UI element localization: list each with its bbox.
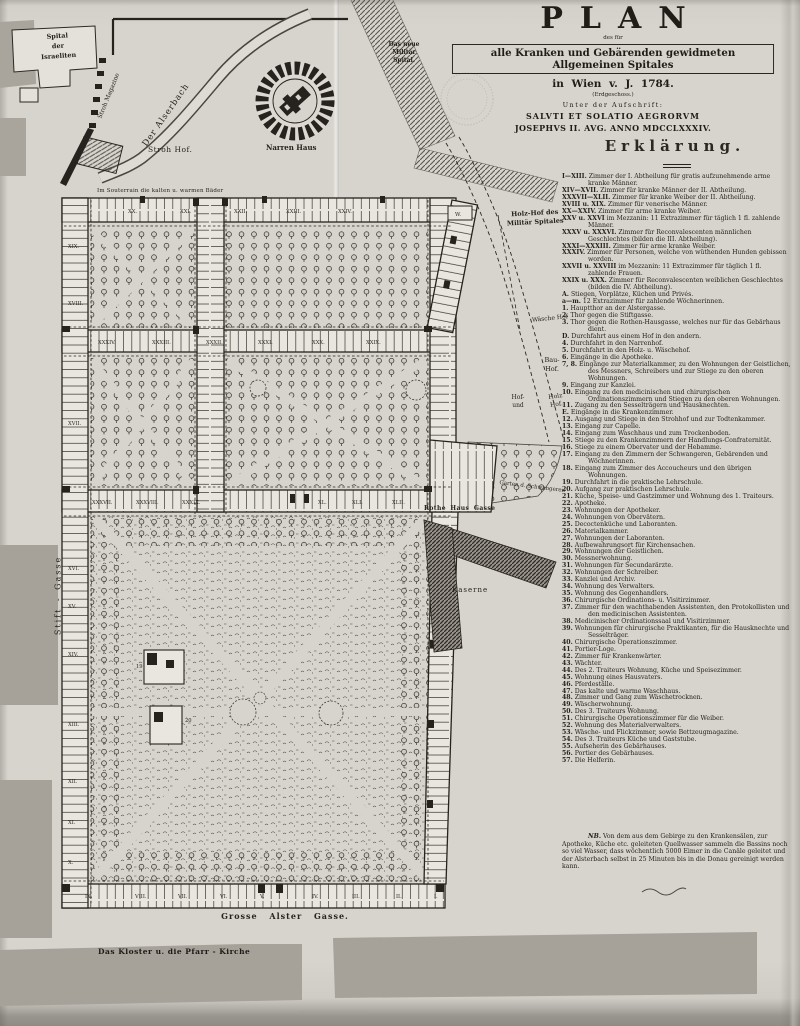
room-label: XXIX. [366, 340, 381, 346]
legend-entry-text: Zimmer der I. Abtheilung für gratis aufz… [588, 173, 770, 187]
legend-entry-key: 30. [562, 555, 573, 562]
inscription-line2: JOSEPHVS II. AVG. ANNO MDCCLXXXIV. [447, 123, 779, 133]
label-souterrain-note: Im Souterrain die kalten u. warmen Bäder [97, 188, 223, 195]
legend-entry-key: 57. [562, 757, 573, 764]
legend-entry-text: Stiege zu den Krankenzimmern der Handlun… [575, 437, 772, 444]
legend-entry-text: Des 2. Traiteurs Wohnung, Küche und Spei… [575, 667, 742, 674]
legend-entry-key: XVIII u. XIX. [562, 201, 606, 208]
title-floor-note: (Erdgeschoss.) [447, 92, 779, 98]
legend-entry-key: 45. [562, 674, 573, 681]
legend-entry-key: 42. [562, 653, 573, 660]
legend-entry-text: Wohnungen der Apotheker. [575, 507, 661, 514]
room-label: VII. [177, 894, 188, 900]
legend-entry-text: Ausgang und Stiege in den Strohhof und z… [575, 416, 766, 423]
legend-entry-text: Durchfahrt in den Narrenhof. [570, 340, 663, 347]
legend-entry: XXIX u. XXX. Zimmer für Reconvalescenten… [562, 278, 791, 292]
legend-entry-key: XXXV u. XXXVI. [562, 229, 616, 236]
room-label: XXII. [234, 209, 247, 215]
legend-entry-text: Portier des Gebärhauses. [575, 750, 654, 757]
narrenturm [255, 61, 335, 141]
outbuilding [20, 88, 38, 102]
label-kloster: Das Kloster u. die Pfarr - Kirche [98, 947, 250, 957]
legend-entry-key: 31. [562, 562, 573, 569]
legend-entry-text: Decoctenküche und Laboranten. [575, 521, 677, 528]
room-label: V. [259, 894, 265, 900]
legend-entry-key: 47. [562, 688, 573, 695]
legend-entry-text: Wohnungen der Schreiber. [575, 569, 659, 576]
room-label: XVI. [68, 566, 79, 572]
legend-entry-text: Zimmer für arme kranke Weiber. [598, 208, 701, 215]
nb-label: NB. [588, 833, 601, 840]
inscription-intro: Unter der Aufschrift: [447, 101, 779, 109]
legend-entry-key: 23. [562, 507, 573, 514]
legend-entry-key: 39. [562, 625, 573, 632]
label-militaer-spital: Das neue Militär Spital. [383, 41, 425, 65]
legend-entry-key: D. [562, 333, 569, 340]
label-rothe-haus-gasse: Rothe Haus Gasse [424, 505, 495, 513]
legend-entry-key: 36. [562, 597, 573, 604]
legend-entry: 37. Zimmer für den wachthabenden Assiste… [562, 605, 791, 619]
printer-imprint: ···· · ·· ····· ····· ··········· ···· ·… [300, 1010, 366, 1014]
legend-entry-text: Chirurgische Operationszimmer für die We… [575, 715, 724, 722]
legend-entry: 39. Wohnungen für chirurgische Praktikan… [562, 626, 791, 640]
legend-entry-text: Wohnung eines Hausvaters. [575, 674, 663, 681]
legend-entry-text: Eingang zum Waschhaus und zum Trockenbod… [575, 430, 731, 437]
legend-entry-text: Eingänge in die Apotheke. [570, 354, 653, 361]
legend-entry: 18. Eingang zum Zimmer des Accoucheurs u… [562, 466, 791, 480]
legend-entry-text: Medicinischer Ordinationssaal und Visiti… [575, 618, 731, 625]
legend-entry-key: 2. [562, 312, 568, 319]
legend-entry-text: Wächter. [575, 660, 602, 667]
room-label: IV. [312, 894, 319, 900]
legend-entry-text: Wäscherwohnung. [575, 701, 633, 708]
legend-entry-key: 37. [562, 604, 573, 611]
legend-entry-key: 10. [562, 389, 573, 396]
legend-entry-text: Aufseherin des Gebärhauses. [575, 743, 667, 750]
legend-entry: XXXV u. XXXVI. Zimmer für Reconvalescent… [562, 230, 791, 244]
legend-entry: XXVII u. XXVIII im Mezzanin: 11 Extrazim… [562, 264, 791, 278]
legend-entry: 10. Eingang zu den medicinischen und chi… [562, 390, 791, 404]
label-kaserne: Kaserne [452, 586, 488, 595]
legend-entry-key: XXXIV. [562, 249, 585, 256]
legend-entry-key: 22. [562, 500, 573, 507]
legend-entry-key: a—m. [562, 298, 581, 305]
legend-entry-text: Wohnungen für chirurgische Praktikanten,… [575, 625, 789, 639]
legend-entry-text: Eingang zur Capelle. [575, 423, 641, 430]
great-garden [91, 516, 428, 882]
legend-entry-text: Eingänge in die Krankenzimmer. [571, 409, 674, 416]
legend-entry-key: 6. [562, 354, 568, 361]
title-boxed-subtitle: alle Kranken und Gebärenden gewidmeten A… [452, 44, 774, 74]
legend-entry-key: 21. [562, 493, 573, 500]
legend-entry-key: 48. [562, 694, 573, 701]
legend-entry-key: XXXVII—XLII. [562, 194, 610, 201]
legend-entry-text: Zimmer für venerische Männer. [608, 201, 708, 208]
room-label: XXXI. [258, 340, 273, 346]
legend-entry-key: 27. [562, 535, 573, 542]
legend-entry-text: Durchfahrt in den Holz- u. Wäschehof. [570, 347, 690, 354]
legend-entry-key: 3. [562, 319, 568, 326]
legend-entry-key: 11. [562, 402, 573, 409]
legend-entry-text: Wohnung des Materialverwalters. [575, 722, 681, 729]
legend-entry-text: Zimmer und Gang zum Wäschetrocknen. [575, 694, 703, 701]
legend-entry-key: XIV—XVII. [562, 187, 598, 194]
label-stroh-hof: Stroh Hof. [148, 145, 192, 155]
road-band-north [350, 0, 455, 150]
legend-entry-key: 49. [562, 701, 573, 708]
label-spital-israeliten: Spital der Israeliten [27, 30, 89, 63]
legend-entry-key: A. [562, 291, 569, 298]
legend-entry-text: Eingang zu den Zimmern der Schwangeren, … [575, 451, 768, 465]
legend-entry-key: 51. [562, 715, 573, 722]
room-label: XXXIII. [152, 340, 171, 346]
room-label: XVIII. [68, 301, 84, 307]
room-label: II. [396, 894, 402, 900]
legend-entry-key: XX—XXIV. [562, 208, 596, 215]
room-label: XXXIV. [98, 340, 116, 346]
squiggle-divider [642, 888, 686, 895]
legend-entry-key: XXIX u. XXX. [562, 277, 607, 284]
room-label: XV. [68, 604, 77, 610]
room-label: XXX. [312, 340, 325, 346]
legend-entry-text: Aufgang zur praktischen Lehrschule. [575, 486, 691, 493]
inscription-line1: SALVTI ET SOLATIO AEGRORVM [447, 111, 779, 121]
room-label: XXIV. [338, 209, 352, 215]
legend-entry-key: 55. [562, 743, 573, 750]
legend-entry-key: 12. [562, 416, 573, 423]
legend-entry: XXXIV. Zimmer für Personen, welche von w… [562, 250, 791, 264]
legend-entry: XXV u. XXVI im Mezzanin: 11 Extrazimmer … [562, 216, 791, 230]
legend-entry: 17. Eingang zu den Zimmern der Schwanger… [562, 452, 791, 466]
legend-entry-key: 46. [562, 681, 573, 688]
legend-entry-key: 7, 8. [562, 361, 577, 368]
legend-entry-key: 25. [562, 521, 573, 528]
legend-entry-text: Aufbewahrungsort für Kirchensachen. [575, 542, 695, 549]
legend-entry-key: E. [562, 409, 569, 416]
legend-entry-key: 43. [562, 660, 573, 667]
legend-entry-text: Eingang zum Zimmer des Accoucheurs und d… [575, 465, 752, 479]
room-label: XLII. [392, 500, 405, 506]
room-label: XXXII. [206, 340, 223, 346]
legend-entry-text: Zugang zu den Sesselträgern und Hausknec… [575, 402, 730, 409]
legend-entry-text: im Mezzanin: 11 Extrazimmer für täglich … [588, 215, 780, 229]
legend-entry-text: Zimmer für den wachthabenden Assistenten… [575, 604, 790, 618]
room-label: XX. [128, 209, 137, 215]
room-label: III. [352, 894, 360, 900]
legend-entry-text: Materialkammer. [575, 528, 629, 535]
w-building-label: W. [455, 212, 461, 218]
legend-entry-key: XXVII u. XXVIII [562, 263, 616, 270]
legend-entry-text: Wohnungen von Obervätern. [575, 514, 665, 521]
legend-entry-key: 32. [562, 569, 573, 576]
room-label: XXXIX. [182, 500, 201, 506]
garden-building-label: 19 [136, 664, 143, 670]
title-des-fur: des für [447, 35, 779, 41]
legend-entry-text: Thor gegen die Rothen-Hausgasse, welches… [570, 319, 780, 333]
legend-entry-text: Wohnung des Verwalters. [575, 583, 655, 590]
legend-entry-text: Die Helferin. [575, 757, 615, 764]
legend-entry-key: 28. [562, 542, 573, 549]
legend-entry-key: I—XIII. [562, 173, 587, 180]
legend-entry-text: Wohnungen der Laboranten. [575, 535, 665, 542]
legend-entry-key: 13. [562, 423, 573, 430]
legend-entry-key: 29. [562, 548, 573, 555]
legend-entry-key: 1. [562, 305, 568, 312]
room-label: XI. [68, 820, 76, 826]
legend-entry-key: 50. [562, 708, 573, 715]
room-label: XXI. [180, 209, 191, 215]
room-label: XIII. [68, 722, 80, 728]
room-label: XIX. [68, 244, 79, 250]
legend-entry-text: Chirurgische Operationszimmer. [575, 639, 677, 646]
legend-entry-text: Zimmer für kranke Weiber der II. Abtheil… [612, 194, 755, 201]
legend-entry-key: XXXI—XXXIII. [562, 243, 611, 250]
legend-entry-text: 12 Extrazimmer für zahlende Wöchnerinnen… [583, 298, 724, 305]
room-label: XXXVIII. [136, 500, 159, 506]
legend-entry-key: 15. [562, 437, 573, 444]
legend-entry-text: Stiege zu einem Obervater und der Hebamm… [575, 444, 722, 451]
room-label: XLI. [352, 500, 363, 506]
legend-entry: 3. Thor gegen die Rothen-Hausgasse, welc… [562, 320, 791, 334]
room-label: I. [434, 894, 438, 900]
legend-entry-key: 33. [562, 576, 573, 583]
legend-entry-text: Hauptthor an der Alstergasse. [570, 305, 665, 312]
legend-entry-key: 19. [562, 479, 573, 486]
legend-entry-text: Zimmer für arme kranke Weiber. [613, 243, 716, 250]
legend-entry-text: Des 3. Traiteurs Küche und Gaststube. [575, 736, 697, 743]
legend-entry-key: 20. [562, 486, 573, 493]
scanned-plan-page: XX. XXI. XXII. XXIII. XXIV. XXXIV. XXXII… [0, 0, 800, 1026]
legend-entry-text: Durchfahrt in die praktische Lehrschule. [575, 479, 703, 486]
legend-entry-key: 54. [562, 736, 573, 743]
room-label: XIV. [68, 652, 79, 658]
legend-entry: I—XIII. Zimmer der I. Abtheilung für gra… [562, 174, 791, 188]
legend-entry-text: Kanzlei und Archiv. [575, 576, 636, 583]
legend-nb-note: NB. Von dem aus dem Gebirge zu den Krank… [562, 833, 791, 871]
legend-entry-key: 18. [562, 465, 573, 472]
legend-entry-key: 41. [562, 646, 573, 653]
legend-entry-key: 17. [562, 451, 573, 458]
legend-heading: Erklärung. [560, 137, 790, 155]
label-narren-haus: Narren Haus [266, 143, 316, 152]
legend-entry-key: 14. [562, 430, 573, 437]
legend-entry-key: XXV u. XXVI [562, 215, 605, 222]
legend-entry-key: 16. [562, 444, 573, 451]
legend-entry-key: 40. [562, 639, 573, 646]
room-label: XXXVII. [92, 500, 113, 506]
label-holz-hof-militaer: Holz-Hof des Militär Spitales [503, 207, 568, 228]
legend-entry-text: Messnerwohnung. [575, 555, 633, 562]
legend-entry-text: Des 3. Traiteurs Wohnung. [575, 708, 659, 715]
legend-entry-text: Eingang zu den medicinischen und chirurg… [575, 389, 781, 403]
legend-entry-key: 24. [562, 514, 573, 521]
legend-entry-key: 26. [562, 528, 573, 535]
legend-entry-text: Stiegen, Vorplätze, Küchen und Privés. [571, 291, 693, 298]
room-label: VI. [219, 894, 228, 900]
legend-entry-text: Eingang zur Kanzlei. [570, 382, 635, 389]
legend-entry-text: Pferdeställe. [575, 681, 615, 688]
legend-entry-text: Wohnung des Gegenhandlers. [575, 590, 669, 597]
title-wien-line: in Wien v. J. 1784. [447, 78, 779, 90]
legend-entries: I—XIII. Zimmer der I. Abtheilung für gra… [562, 174, 791, 765]
legend-entry-text: Wohnungen der Geistlichen. [575, 548, 664, 555]
title-block: PLAN des für alle Kranken und Gebärenden… [447, 4, 779, 133]
room-label: XXIII. [286, 209, 302, 215]
legend-entry-key: 53. [562, 729, 573, 736]
legend-entry: 7, 8. Eingänge zur Materialkammer, zu de… [562, 362, 791, 383]
legend-entry-text: Zimmer für Reconvalescenten weiblichen G… [588, 277, 783, 291]
legend-entry-key: 56. [562, 750, 573, 757]
room-label: XII. [68, 779, 78, 785]
road-band-east [414, 148, 558, 202]
street-border-line [113, 19, 348, 55]
legend-entry-key: 44. [562, 667, 573, 674]
legend-entry-key: 38. [562, 618, 573, 625]
legend-entry-text: Portier-Loge. [575, 646, 616, 653]
garden-building-label: 20 [185, 718, 192, 724]
legend-entry-key: 35. [562, 590, 573, 597]
room-label: XVII. [68, 421, 82, 427]
legend-divider [663, 164, 691, 168]
room-label: IX. [85, 894, 93, 900]
label-grosse-alster-gasse: Grosse Alster Gasse. [200, 911, 370, 922]
legend-entry-key: 9. [562, 382, 568, 389]
legend-entry-text: Apotheke. [575, 500, 607, 507]
legend-entry-text: Das kalte und warme Waschhaus. [575, 688, 681, 695]
legend-entry-key: 4. [562, 340, 568, 347]
label-stift-gasse: Stift - Gasse [54, 550, 65, 640]
legend-entry-text: Chirurgische Ordinations- u. Visitirzimm… [575, 597, 711, 604]
room-label: VIII. [134, 894, 147, 900]
label-hof-und: Hof- und [508, 394, 528, 410]
label-bau-hof: Bau- Hof. [541, 356, 563, 374]
legend-entry: 57. Die Helferin. [562, 758, 791, 765]
legend-entry-text: Eingänge zur Materialkammer, zu den Wohn… [579, 361, 790, 382]
legend-entry-text: Durchfahrt aus einem Hof in den andern. [571, 333, 701, 340]
legend-entry-text: Zimmer für kranke Männer der II. Abtheil… [600, 187, 746, 194]
plan-title: PLAN [447, 4, 779, 34]
legend-entry-text: Zimmer für Personen, welche von wüthende… [587, 249, 786, 263]
legend-entry-text: Zimmer für Krankenwärter. [575, 653, 662, 660]
room-label: XL. [318, 500, 327, 506]
legend-entry-text: Küche, Speise- und Gastzimmer und Wohnun… [575, 493, 774, 500]
legend-entry-text: Wäsche- und Flickzimmer, sowie Bettzeugm… [575, 729, 739, 736]
legend-entry-text: Thor gegen die Stiftgasse. [570, 312, 653, 319]
legend-entry-key: 34. [562, 583, 573, 590]
room-label: X. [68, 860, 74, 866]
courtyard-gardens [91, 228, 428, 486]
legend-entry-key: 52. [562, 722, 573, 729]
legend-entry-text: Wohnungen für Secundarärzte. [575, 562, 673, 569]
legend-entry-key: 5. [562, 347, 568, 354]
kaserne-building [424, 520, 556, 652]
